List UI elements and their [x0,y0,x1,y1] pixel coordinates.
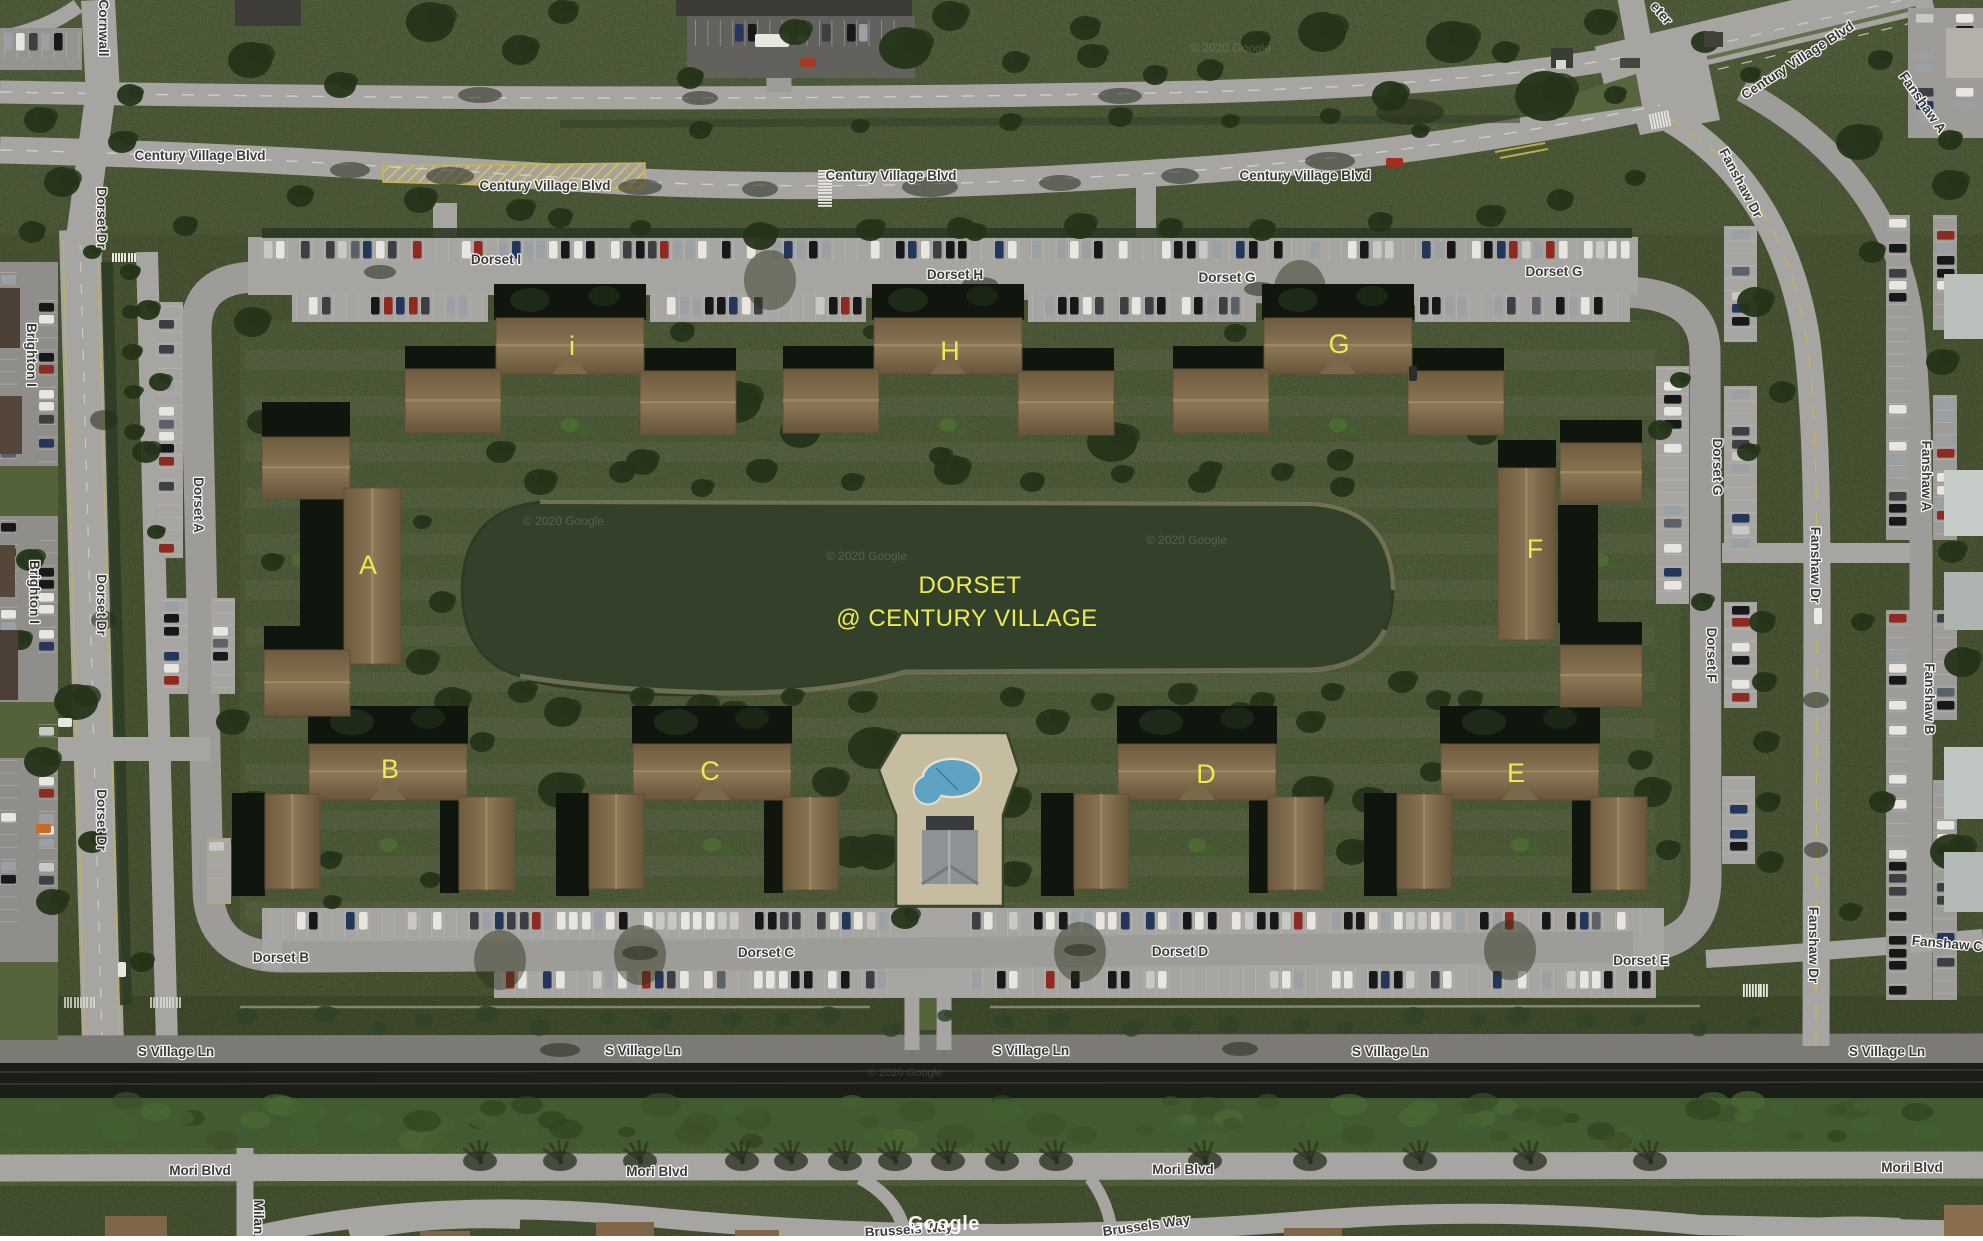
svg-text:Dorset Dr: Dorset Dr [94,187,109,249]
svg-text:Fanshaw Dr: Fanshaw Dr [1806,907,1821,984]
svg-text:Dorset H: Dorset H [927,267,983,282]
svg-text:Mori Blvd: Mori Blvd [169,1163,231,1178]
svg-text:Dorset G: Dorset G [1525,264,1582,279]
svg-text:Brighton I: Brighton I [24,323,39,387]
svg-text:Cornwall: Cornwall [96,0,111,57]
svg-text:B: B [381,754,399,784]
svg-text:C: C [700,756,720,786]
svg-text:Dorset B: Dorset B [253,950,310,965]
svg-text:Century Village Blvd: Century Village Blvd [825,168,956,183]
svg-text:Century Village Blvd: Century Village Blvd [1239,168,1370,183]
svg-text:Milan: Milan [251,1200,266,1235]
svg-text:Century Village Blvd: Century Village Blvd [134,148,265,163]
svg-text:Fanshaw B: Fanshaw B [1922,663,1937,735]
svg-text:Century Village Blvd: Century Village Blvd [479,178,610,193]
svg-text:Dorset G: Dorset G [1198,270,1255,285]
svg-text:Mori Blvd: Mori Blvd [1881,1160,1943,1175]
svg-text:© 2020 Google: © 2020 Google [523,514,604,528]
svg-text:Dorset I: Dorset I [471,252,521,267]
svg-text:Mori Blvd: Mori Blvd [1152,1162,1214,1177]
svg-text:F: F [1527,534,1544,564]
svg-text:S Village Ln: S Village Ln [138,1044,214,1059]
svg-text:© 2020 Google: © 2020 Google [1146,533,1227,547]
svg-text:S Village Ln: S Village Ln [605,1043,681,1058]
svg-text:H: H [940,336,960,366]
svg-text:Dorset Dr: Dorset Dr [94,789,109,851]
svg-text:G: G [1328,329,1349,359]
svg-text:@ CENTURY VILLAGE: @ CENTURY VILLAGE [836,605,1097,632]
svg-text:Fanshaw A: Fanshaw A [1919,441,1934,512]
svg-text:S Village Ln: S Village Ln [1849,1044,1925,1059]
svg-text:© 2020 Google: © 2020 Google [826,549,907,563]
svg-text:Fanshaw Dr: Fanshaw Dr [1808,527,1823,604]
svg-text:Dorset C: Dorset C [738,945,795,960]
svg-text:A: A [359,550,377,580]
svg-text:Dorset E: Dorset E [1613,953,1669,968]
svg-text:Dorset D: Dorset D [1152,944,1209,959]
svg-text:E: E [1507,758,1525,788]
svg-text:Dorset F: Dorset F [1704,628,1719,683]
svg-text:S Village Ln: S Village Ln [1352,1044,1428,1059]
svg-text:Mori Blvd: Mori Blvd [626,1164,688,1179]
svg-text:D: D [1196,759,1216,789]
svg-text:Brighton I: Brighton I [27,560,42,624]
svg-text:i: i [569,331,575,361]
svg-text:S Village Ln: S Village Ln [993,1043,1069,1058]
svg-text:DORSET: DORSET [918,572,1021,599]
svg-text:Dorset A: Dorset A [191,477,206,533]
svg-text:© 2020 Google: © 2020 Google [868,1067,942,1079]
svg-text:Google: Google [908,1213,980,1235]
svg-text:Dorset Dr: Dorset Dr [94,574,109,636]
svg-text:© 2020 Google: © 2020 Google [1190,41,1271,55]
svg-text:Dorset G: Dorset G [1710,438,1725,495]
